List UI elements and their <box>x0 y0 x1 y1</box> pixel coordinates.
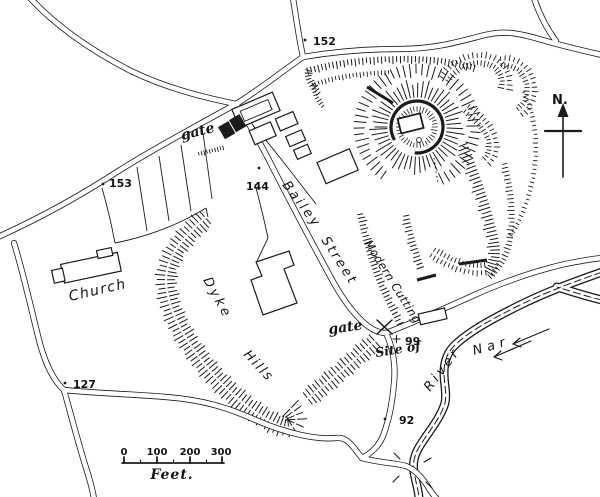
hachure-tick <box>410 157 412 169</box>
hachure-tick <box>172 301 181 304</box>
l-shaped-building <box>251 251 297 315</box>
hachure-tick <box>410 108 412 114</box>
hachure-tick <box>409 65 411 78</box>
north-rampart <box>304 55 476 97</box>
hachure-tick <box>476 192 485 195</box>
hachure-tick <box>445 59 446 65</box>
hachure-tick <box>447 255 449 260</box>
hachure-tick <box>390 70 394 78</box>
hachure-tick <box>444 262 446 267</box>
hachure-tick <box>288 416 294 419</box>
road-bridge-fill <box>362 458 437 497</box>
hachure-tick <box>530 112 533 113</box>
hachure-tick <box>386 298 392 301</box>
hachure-tick <box>478 207 490 211</box>
hachure-tick <box>518 220 521 221</box>
hachure-tick <box>441 260 443 264</box>
scale-tick-200: 200 <box>180 447 201 458</box>
hachure-tick <box>164 317 173 321</box>
hachure-tick <box>422 142 424 147</box>
hachure-tick <box>513 58 514 62</box>
hachure-tick <box>430 57 431 64</box>
hachure-tick <box>427 111 430 115</box>
hachure-tick <box>174 336 183 341</box>
hachure-tick <box>236 389 241 395</box>
hachure-tick <box>345 358 349 363</box>
hachure-tick <box>479 126 483 129</box>
hachure-tick <box>522 207 526 209</box>
spot-height-152: 152 <box>313 35 336 48</box>
hachure-tick <box>351 365 355 370</box>
hachure-tick <box>181 324 187 327</box>
hachure-tick <box>294 406 301 411</box>
hachure-tick <box>452 265 454 269</box>
hachure-tick <box>221 392 227 399</box>
hachure-tick <box>346 75 347 79</box>
hachure-tick <box>497 60 499 63</box>
hachure-tick <box>266 412 269 418</box>
hachure-tick <box>469 270 470 274</box>
hachure-tick <box>318 81 319 84</box>
gate-label-north: gate <box>179 120 216 144</box>
hachure-tick <box>344 370 349 376</box>
hachure-tick <box>485 136 490 138</box>
hachure-tick <box>444 172 449 181</box>
hachure-tick <box>504 248 510 250</box>
hachure-tick <box>440 76 443 78</box>
hachure-tick <box>527 69 532 72</box>
hachure-tick <box>507 89 513 90</box>
hachure-tick <box>187 334 193 338</box>
hachure-tick <box>520 73 525 76</box>
hachure-tick <box>155 274 165 275</box>
town-bank-south <box>307 341 375 399</box>
hachure-tick <box>187 353 195 359</box>
hachure-tick <box>527 195 531 196</box>
hachure-tick <box>169 291 177 293</box>
hachure-tick <box>450 170 455 177</box>
hachure-tick <box>483 157 486 160</box>
road-casings-layer <box>0 0 600 497</box>
hachure-tick <box>446 118 458 121</box>
hachure-tick <box>270 412 274 419</box>
hachure-tick <box>159 260 168 263</box>
plot-line <box>115 208 206 243</box>
hachure-tick <box>468 105 470 108</box>
hachure-tick <box>315 97 318 99</box>
hachure-tick <box>441 145 455 156</box>
hachure-tick <box>525 94 529 95</box>
hachure-tick <box>413 107 414 111</box>
hachure-tick <box>158 292 166 294</box>
hachure-tick <box>215 386 222 393</box>
hachure-tick <box>174 309 182 312</box>
hachure-tick <box>531 100 536 102</box>
scale-unit-label: Feet. <box>149 467 193 483</box>
hachure-tick <box>376 167 383 175</box>
hachure-tick <box>359 59 360 64</box>
hachure-tick <box>191 357 197 361</box>
hachure-tick <box>414 259 421 262</box>
hachure-tick <box>461 95 471 101</box>
hachure-tick <box>408 238 414 240</box>
hachure-tick <box>471 132 480 133</box>
hachure-tick <box>508 64 509 69</box>
hachure-tick <box>194 230 200 236</box>
hachure-tick <box>434 58 435 63</box>
hachure-tick <box>262 407 267 415</box>
hachure-tick <box>173 306 179 308</box>
plot-line <box>257 238 268 261</box>
hachure-tick <box>385 73 392 84</box>
hachure-tick <box>524 65 527 68</box>
hachure-tick <box>481 129 486 132</box>
hachure-tick <box>485 155 488 157</box>
hachure-tick <box>179 319 187 323</box>
hachure-tick <box>204 151 205 155</box>
hachure-tick <box>447 128 463 129</box>
hachure-tick <box>252 401 257 408</box>
hachure-tick <box>519 71 522 74</box>
hachure-tick <box>523 92 526 93</box>
hachure-tick <box>432 120 436 121</box>
hachure-tick <box>493 138 497 139</box>
hachure-tick <box>306 75 312 76</box>
hachure-tick <box>351 353 355 357</box>
hachure-tick <box>487 139 491 140</box>
hachure-tick <box>184 346 189 350</box>
hachure-tick <box>371 162 380 170</box>
hachure-tick <box>420 107 421 112</box>
hachure-tick <box>169 268 175 270</box>
hachure-tick <box>360 344 364 349</box>
hachure-tick <box>401 138 404 141</box>
hachure-tick <box>525 84 529 85</box>
hachure-tick <box>491 159 494 161</box>
hachure-tick <box>533 130 537 131</box>
hachure-tick <box>306 389 311 395</box>
hachure-tick <box>488 62 489 66</box>
hachure-tick <box>201 152 202 156</box>
hachure-tick <box>466 142 477 145</box>
hachure-tick <box>338 376 343 382</box>
hachure-tick <box>533 125 536 126</box>
hachure-tick <box>379 139 390 144</box>
hachure-tick <box>459 57 461 62</box>
hachure-tick <box>466 170 477 174</box>
hachure-tick <box>493 65 495 68</box>
hachure-tick <box>356 345 362 352</box>
hachure-tick <box>194 344 201 349</box>
hachure-tick <box>325 79 326 84</box>
spot-height-127: 127 <box>73 378 96 391</box>
hachure-tick <box>476 196 487 199</box>
building-east-of-street <box>317 149 358 184</box>
hachure-tick <box>532 96 536 97</box>
hachure-tick <box>159 288 165 289</box>
hachure-tick <box>380 107 391 113</box>
hachure-tick <box>341 373 345 377</box>
hachure-tick <box>473 263 474 268</box>
hachure-tick <box>403 66 406 78</box>
hachure-tick <box>360 149 369 153</box>
hachure-tick <box>176 312 185 316</box>
hachure-tick <box>273 413 278 422</box>
road-branch-152-fill <box>293 0 303 57</box>
hachure-tick <box>377 278 382 280</box>
hachure-tick <box>196 213 202 219</box>
hachure-tick <box>329 63 330 68</box>
hachure-tick <box>430 254 432 257</box>
hachure-tick <box>531 117 535 118</box>
hachure-tick <box>417 263 422 265</box>
hachure-tick <box>464 110 466 113</box>
hachure-tick <box>425 109 427 113</box>
hachure-tick <box>171 239 178 244</box>
hachure-tick <box>180 246 187 251</box>
hachure-tick <box>460 62 461 67</box>
hachure-tick <box>470 62 471 66</box>
hachure-tick <box>506 244 511 245</box>
hachure-tick <box>231 400 237 408</box>
scale-tick-300: 300 <box>211 447 232 458</box>
mid-lobe-bank-ticks <box>464 105 500 166</box>
hachure-tick <box>448 66 451 69</box>
hachure-tick <box>498 77 503 78</box>
spot-height-dot <box>384 418 387 421</box>
hachure-tick <box>440 251 443 256</box>
hachure-tick <box>529 191 532 192</box>
hachure-tick <box>204 358 209 362</box>
hachure-tick <box>517 59 519 63</box>
hachure-tick <box>462 100 474 106</box>
hachure-tick <box>379 77 386 86</box>
hachure-tick <box>357 359 361 363</box>
hachure-tick <box>447 123 461 124</box>
hachure-tick <box>358 217 364 218</box>
hachure-tick <box>530 182 534 183</box>
hachure-tick <box>197 227 202 232</box>
plot-line <box>159 156 169 221</box>
ne-lobe-bank-ticks <box>440 52 513 90</box>
hachure-tick <box>348 367 354 374</box>
hachure-tick <box>423 156 426 170</box>
hachure-tick <box>197 346 205 352</box>
hachure-tick <box>223 146 224 150</box>
hachure-tick <box>474 120 478 124</box>
hachure-tick <box>407 140 410 145</box>
hachure-tick <box>472 188 484 192</box>
hachure-tick <box>363 235 369 237</box>
hachure-tick <box>366 351 370 356</box>
hachure-tick <box>485 219 493 221</box>
hachure-tick <box>160 305 169 308</box>
hachure-tick <box>404 111 407 115</box>
hachure-tick <box>178 316 185 319</box>
hachure-tick <box>172 260 179 263</box>
north-label: N. <box>552 93 568 108</box>
hachure-tick <box>173 328 179 331</box>
hachure-tick <box>215 148 216 152</box>
hachure-tick <box>200 224 207 231</box>
hachure-tick <box>473 185 483 188</box>
hachure-tick <box>513 66 515 70</box>
hachure-tick <box>437 250 439 254</box>
hachure-tick <box>160 265 166 267</box>
hachure-tick <box>444 68 448 72</box>
building-outline <box>275 112 298 131</box>
hachure-tick <box>363 353 369 360</box>
hachure-tick <box>492 133 497 135</box>
earthworks-layer <box>155 52 539 437</box>
hachure-tick <box>487 246 499 247</box>
gate-label-south: gate <box>327 317 363 338</box>
hachure-tick <box>487 231 496 233</box>
hachure-tick <box>245 396 251 403</box>
hachure-tick <box>286 419 295 420</box>
hachure-tick <box>460 268 461 272</box>
hachure-tick <box>509 234 512 236</box>
hachure-tick <box>406 227 412 228</box>
modern-cutting-label: Modern Cutting <box>361 237 424 326</box>
hachure-tick <box>303 393 307 398</box>
hachure-tick <box>433 123 438 124</box>
hachure-tick <box>451 163 460 173</box>
hachure-tick <box>369 335 374 340</box>
hachure-tick <box>242 395 247 401</box>
hachure-tick <box>531 77 536 79</box>
scale-tick-100: 100 <box>147 447 168 458</box>
scale-bar <box>122 457 224 463</box>
hachure-tick <box>480 200 488 202</box>
hachure-tick <box>308 385 314 392</box>
hachure-tick <box>507 199 513 200</box>
hachure-tick <box>481 215 492 218</box>
hachure-tick <box>359 220 367 222</box>
hachure-tick <box>392 312 397 315</box>
hachure-tick <box>403 223 411 225</box>
hachure-tick <box>529 73 533 75</box>
hachure-tick <box>190 336 198 341</box>
hachure-tick <box>362 232 367 233</box>
river-layer <box>413 272 600 497</box>
hachure-tick <box>391 308 398 311</box>
hachure-tick <box>312 397 317 403</box>
hachure-tick <box>218 373 223 377</box>
road-branch-ne-fill <box>534 0 556 41</box>
hachure-tick <box>355 134 364 135</box>
hachure-tick <box>504 252 509 254</box>
hachure-tick <box>355 115 368 118</box>
hachure-tick <box>401 84 406 99</box>
hachure-tick <box>488 124 493 127</box>
hachure-tick <box>456 69 459 73</box>
hachure-tick <box>381 171 386 178</box>
hachure-tick <box>491 257 499 258</box>
hachure-tick <box>236 403 241 409</box>
hachure-tick <box>387 302 392 304</box>
hachure-tick <box>382 291 389 294</box>
hachure-tick <box>502 258 506 260</box>
hachure-tick <box>319 392 323 397</box>
hachure-tick <box>176 231 184 237</box>
hachure-tick <box>459 89 467 95</box>
hachure-tick <box>281 416 284 425</box>
hachure-tick <box>176 253 183 257</box>
hachure-tick <box>312 89 316 90</box>
hachure-tick <box>490 63 493 68</box>
hachure-tick <box>498 87 504 88</box>
hachure-tick <box>168 276 178 277</box>
hachure-tick <box>373 116 388 120</box>
hachure-tick <box>469 177 479 181</box>
hachure-tick <box>447 132 464 135</box>
hachure-tick <box>328 384 333 390</box>
hachure-tick <box>413 85 414 97</box>
hachure-tick <box>397 67 400 77</box>
hachure-tick <box>396 319 401 321</box>
hachure-tick <box>339 76 340 80</box>
hachure-tick <box>425 81 430 98</box>
hachure-tick <box>455 267 457 272</box>
hachure-tick <box>202 353 209 359</box>
hachure-tick <box>317 99 321 102</box>
hachure-tick <box>457 84 464 90</box>
hachure-tick <box>168 321 175 324</box>
hachure-tick <box>438 92 450 105</box>
hachure-tick <box>206 376 213 382</box>
hachure-tick <box>407 109 410 114</box>
hachure-tick <box>459 66 461 69</box>
hachure-tick <box>224 377 231 384</box>
hachure-tick <box>360 356 365 362</box>
hachure-tick <box>527 104 530 105</box>
hachure-tick <box>474 108 478 112</box>
hachure-tick <box>411 245 416 247</box>
hachure-tick <box>495 68 499 72</box>
hachure-tick <box>199 351 205 355</box>
hachure-tick <box>446 135 458 138</box>
building-outline <box>286 130 306 147</box>
hachure-tick <box>403 219 409 220</box>
hachure-tick <box>521 103 525 106</box>
hachure-tick <box>313 384 317 389</box>
hachure-tick <box>344 60 345 67</box>
hachure-tick <box>297 412 303 414</box>
hachure-tick <box>468 107 477 110</box>
hachure-tick <box>489 242 499 244</box>
hachure-tick <box>197 364 202 368</box>
hachure-tick <box>414 252 419 254</box>
hachure-tick <box>529 186 533 187</box>
hachure-tick <box>502 167 507 168</box>
hachure-tick <box>483 119 486 121</box>
hachure-tick <box>322 105 324 107</box>
hachure-tick <box>512 231 515 233</box>
hachure-tick <box>487 150 491 151</box>
hachure-tick <box>508 195 513 196</box>
hachure-tick <box>209 149 210 153</box>
hachure-tick <box>325 386 329 390</box>
hachure-tick <box>212 367 218 372</box>
hachure-tick <box>434 248 436 251</box>
hachure-tick <box>198 152 199 155</box>
hachure-tick <box>349 74 350 79</box>
hachure-tick <box>169 294 179 296</box>
road-nw-diagonal-casing <box>30 0 236 104</box>
hachure-tick <box>518 104 522 108</box>
hachure-tick <box>484 262 485 267</box>
